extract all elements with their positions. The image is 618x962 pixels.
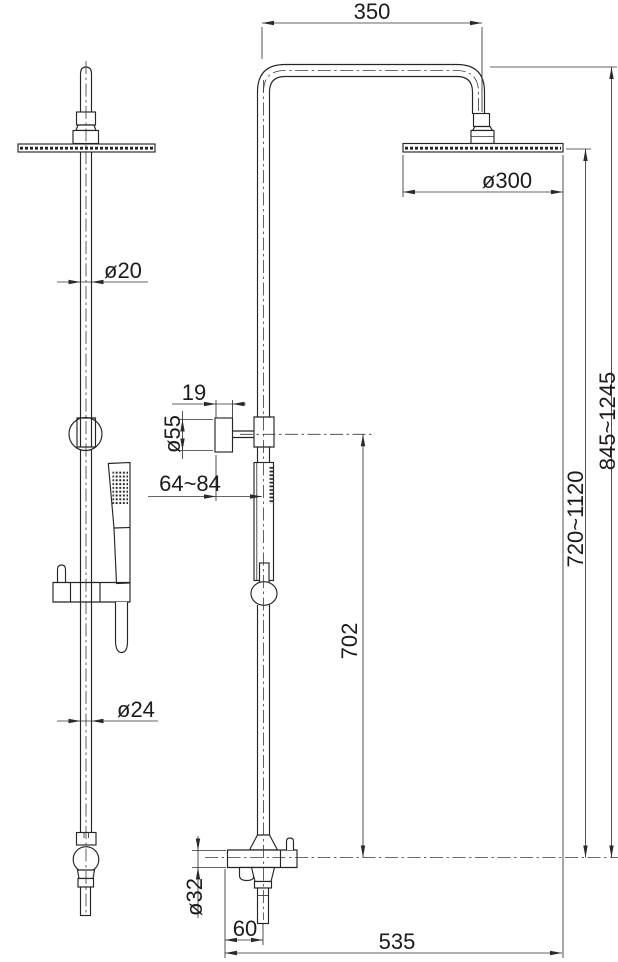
dim-label-outlet-offset: 60 [233,916,257,941]
holder-knob-stem [58,565,66,583]
dim-label-riser-height: 702 [337,623,362,660]
dim-19-extensions [216,400,233,418]
dim-label-mixer-body-diameter: ø32 [182,878,207,916]
head-connector-nut-lower [471,131,494,144]
outlet-cone [252,868,275,882]
mixer-right-lever [287,838,294,850]
head-connector-taper [473,127,493,131]
hand-shower-front-spray-edge [270,466,275,504]
outlet-pipe [258,888,269,924]
dim-32-extensions [192,851,226,868]
outlet-pipe-side [81,887,91,916]
left-view [18,61,155,916]
dim-label-head-diameter: ø300 [482,168,532,193]
slider-holder-ring [69,418,102,451]
shower-system-technical-drawing: 350 ø300 ø20 ø24 19 ø55 64~84 702 [0,0,618,962]
head-connector-nut-upper [474,114,490,127]
hose-drop [116,602,128,653]
wall-knob [215,418,233,452]
dim-label-arm-projection: 350 [354,0,391,24]
dim-label-holder-knob-diameter: ø55 [160,415,185,453]
shower-arm-inner [270,77,473,117]
hose-ball [251,582,277,606]
hand-shower-neck-line [114,528,130,529]
dim-label-wall-distance: 64~84 [159,471,221,496]
technical-drawing-page: 350 ø300 ø20 ø24 19 ø55 64~84 702 [0,0,618,962]
bracket-block [254,417,274,447]
dim-label-overall-height-range: 845~1245 [595,372,618,471]
hand-shower-spray-face [113,471,129,504]
dim-label-head-height-range: 720~1120 [563,471,588,568]
dim-300-extensions [403,155,563,958]
dim-label-overall-width: 535 [379,929,416,954]
dim-350-extensions [262,27,482,112]
dim-label-upper-pipe-diameter: ø20 [104,258,142,283]
mixer-body [228,850,298,868]
hose-connector [260,563,270,583]
shower-arm-outer [258,65,485,117]
outlet-band [255,882,272,889]
dim-label-lower-pipe-diameter: ø24 [117,697,155,722]
dim-label-holder-depth: 19 [182,380,206,405]
